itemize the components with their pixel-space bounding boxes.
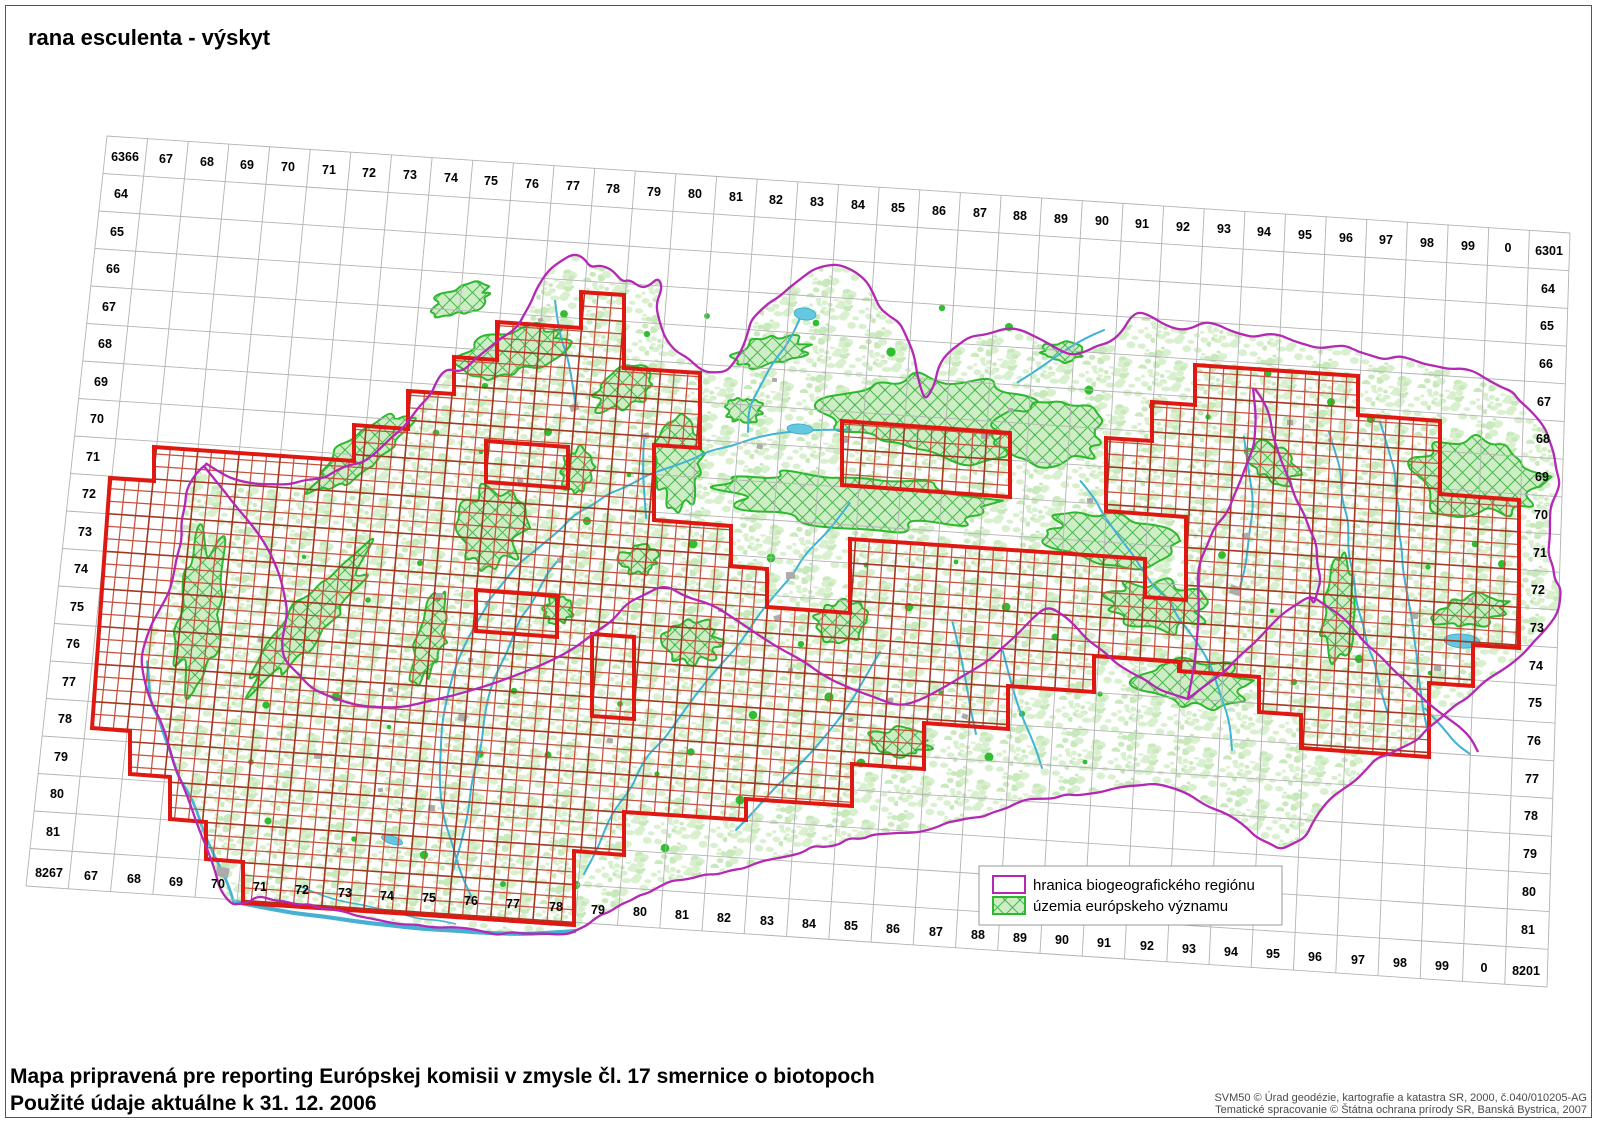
svg-text:8267: 8267	[35, 866, 63, 880]
svg-text:70: 70	[90, 412, 104, 426]
svg-text:6301: 6301	[1535, 244, 1563, 258]
svg-text:69: 69	[94, 375, 108, 389]
svg-text:81: 81	[1521, 923, 1535, 937]
svg-text:92: 92	[1140, 939, 1154, 953]
svg-text:76: 76	[525, 177, 539, 191]
svg-text:95: 95	[1266, 947, 1280, 961]
svg-text:72: 72	[1531, 583, 1545, 597]
svg-text:Mapa pripravená pre reporting: Mapa pripravená pre reporting Európskej …	[10, 1065, 875, 1088]
svg-text:73: 73	[338, 886, 352, 900]
svg-text:72: 72	[295, 883, 309, 897]
svg-text:67: 67	[159, 152, 173, 166]
svg-text:76: 76	[66, 637, 80, 651]
svg-text:SVM50 © Úrad geodézie, kartogr: SVM50 © Úrad geodézie, kartografie a kat…	[1214, 1091, 1587, 1104]
svg-text:70: 70	[1534, 508, 1548, 522]
svg-text:90: 90	[1055, 933, 1069, 947]
svg-text:95: 95	[1298, 228, 1312, 242]
svg-text:88: 88	[971, 928, 985, 942]
svg-text:68: 68	[127, 872, 141, 886]
svg-text:79: 79	[647, 185, 661, 199]
svg-text:74: 74	[444, 171, 458, 185]
svg-text:80: 80	[50, 787, 64, 801]
svg-text:75: 75	[70, 600, 84, 614]
svg-text:99: 99	[1461, 239, 1475, 253]
svg-text:69: 69	[240, 158, 254, 172]
svg-text:71: 71	[1533, 546, 1547, 560]
svg-text:65: 65	[1540, 319, 1554, 333]
svg-text:96: 96	[1339, 231, 1353, 245]
svg-text:70: 70	[211, 877, 225, 891]
svg-text:91: 91	[1097, 936, 1111, 950]
svg-text:74: 74	[1529, 659, 1543, 673]
svg-text:66: 66	[1539, 357, 1553, 371]
svg-text:81: 81	[729, 190, 743, 204]
svg-text:74: 74	[74, 562, 88, 576]
svg-text:71: 71	[86, 450, 100, 464]
svg-text:78: 78	[549, 900, 563, 914]
svg-text:72: 72	[362, 166, 376, 180]
svg-text:64: 64	[114, 187, 128, 201]
svg-text:74: 74	[380, 889, 394, 903]
svg-text:92: 92	[1176, 220, 1190, 234]
svg-text:75: 75	[484, 174, 498, 188]
svg-text:Použité údaje aktuálne k 31. 1: Použité údaje aktuálne k 31. 12. 2006	[10, 1092, 377, 1115]
svg-text:71: 71	[253, 880, 267, 894]
svg-text:86: 86	[932, 204, 946, 218]
svg-text:77: 77	[566, 179, 580, 193]
svg-text:76: 76	[464, 894, 478, 908]
svg-text:86: 86	[886, 922, 900, 936]
svg-text:69: 69	[1535, 470, 1549, 484]
svg-text:85: 85	[844, 919, 858, 933]
svg-text:0: 0	[1505, 241, 1512, 255]
svg-text:82: 82	[769, 193, 783, 207]
svg-text:rana esculenta - výskyt: rana esculenta - výskyt	[28, 25, 271, 50]
svg-text:územia európskeho významu: územia európskeho významu	[1033, 898, 1228, 915]
svg-text:66: 66	[106, 262, 120, 276]
svg-text:79: 79	[54, 750, 68, 764]
svg-text:85: 85	[891, 201, 905, 215]
svg-text:6366: 6366	[111, 150, 139, 164]
svg-text:0: 0	[1481, 961, 1488, 975]
svg-text:75: 75	[422, 891, 436, 905]
svg-text:87: 87	[929, 925, 943, 939]
svg-text:68: 68	[98, 337, 112, 351]
svg-text:82: 82	[717, 911, 731, 925]
svg-text:90: 90	[1095, 214, 1109, 228]
svg-text:84: 84	[802, 917, 816, 931]
svg-text:79: 79	[591, 903, 605, 917]
svg-text:Tematické spracovanie © Štátna: Tematické spracovanie © Štátna ochrana p…	[1215, 1103, 1587, 1116]
svg-text:71: 71	[322, 163, 336, 177]
svg-text:96: 96	[1308, 950, 1322, 964]
svg-text:68: 68	[200, 155, 214, 169]
svg-text:hranica biogeografického regió: hranica biogeografického regiónu	[1033, 877, 1255, 894]
svg-text:80: 80	[688, 187, 702, 201]
svg-text:75: 75	[1528, 696, 1542, 710]
svg-text:93: 93	[1182, 942, 1196, 956]
svg-text:98: 98	[1420, 236, 1434, 250]
svg-text:67: 67	[1537, 395, 1551, 409]
svg-text:64: 64	[1541, 282, 1555, 296]
svg-text:77: 77	[1525, 772, 1539, 786]
svg-text:78: 78	[606, 182, 620, 196]
svg-text:78: 78	[58, 712, 72, 726]
svg-text:94: 94	[1224, 945, 1238, 959]
svg-text:93: 93	[1217, 222, 1231, 236]
svg-text:76: 76	[1527, 734, 1541, 748]
svg-text:83: 83	[760, 914, 774, 928]
svg-text:97: 97	[1379, 233, 1393, 247]
svg-text:8201: 8201	[1512, 964, 1540, 978]
svg-text:84: 84	[851, 198, 865, 212]
svg-text:79: 79	[1523, 847, 1537, 861]
svg-text:73: 73	[1530, 621, 1544, 635]
svg-text:72: 72	[82, 487, 96, 501]
svg-text:68: 68	[1536, 432, 1550, 446]
svg-text:91: 91	[1135, 217, 1149, 231]
svg-text:80: 80	[633, 905, 647, 919]
svg-text:81: 81	[675, 908, 689, 922]
svg-text:77: 77	[62, 675, 76, 689]
svg-text:89: 89	[1013, 931, 1027, 945]
svg-text:77: 77	[506, 897, 520, 911]
svg-text:81: 81	[46, 825, 60, 839]
svg-text:80: 80	[1522, 885, 1536, 899]
svg-text:65: 65	[110, 225, 124, 239]
svg-text:73: 73	[403, 168, 417, 182]
svg-text:67: 67	[102, 300, 116, 314]
svg-text:73: 73	[78, 525, 92, 539]
svg-text:87: 87	[973, 206, 987, 220]
svg-text:78: 78	[1524, 809, 1538, 823]
svg-text:97: 97	[1351, 953, 1365, 967]
svg-text:99: 99	[1435, 959, 1449, 973]
svg-text:67: 67	[84, 869, 98, 883]
svg-text:94: 94	[1257, 225, 1271, 239]
svg-text:88: 88	[1013, 209, 1027, 223]
svg-text:98: 98	[1393, 956, 1407, 970]
svg-text:70: 70	[281, 160, 295, 174]
svg-text:89: 89	[1054, 212, 1068, 226]
svg-text:83: 83	[810, 195, 824, 209]
svg-text:69: 69	[169, 875, 183, 889]
